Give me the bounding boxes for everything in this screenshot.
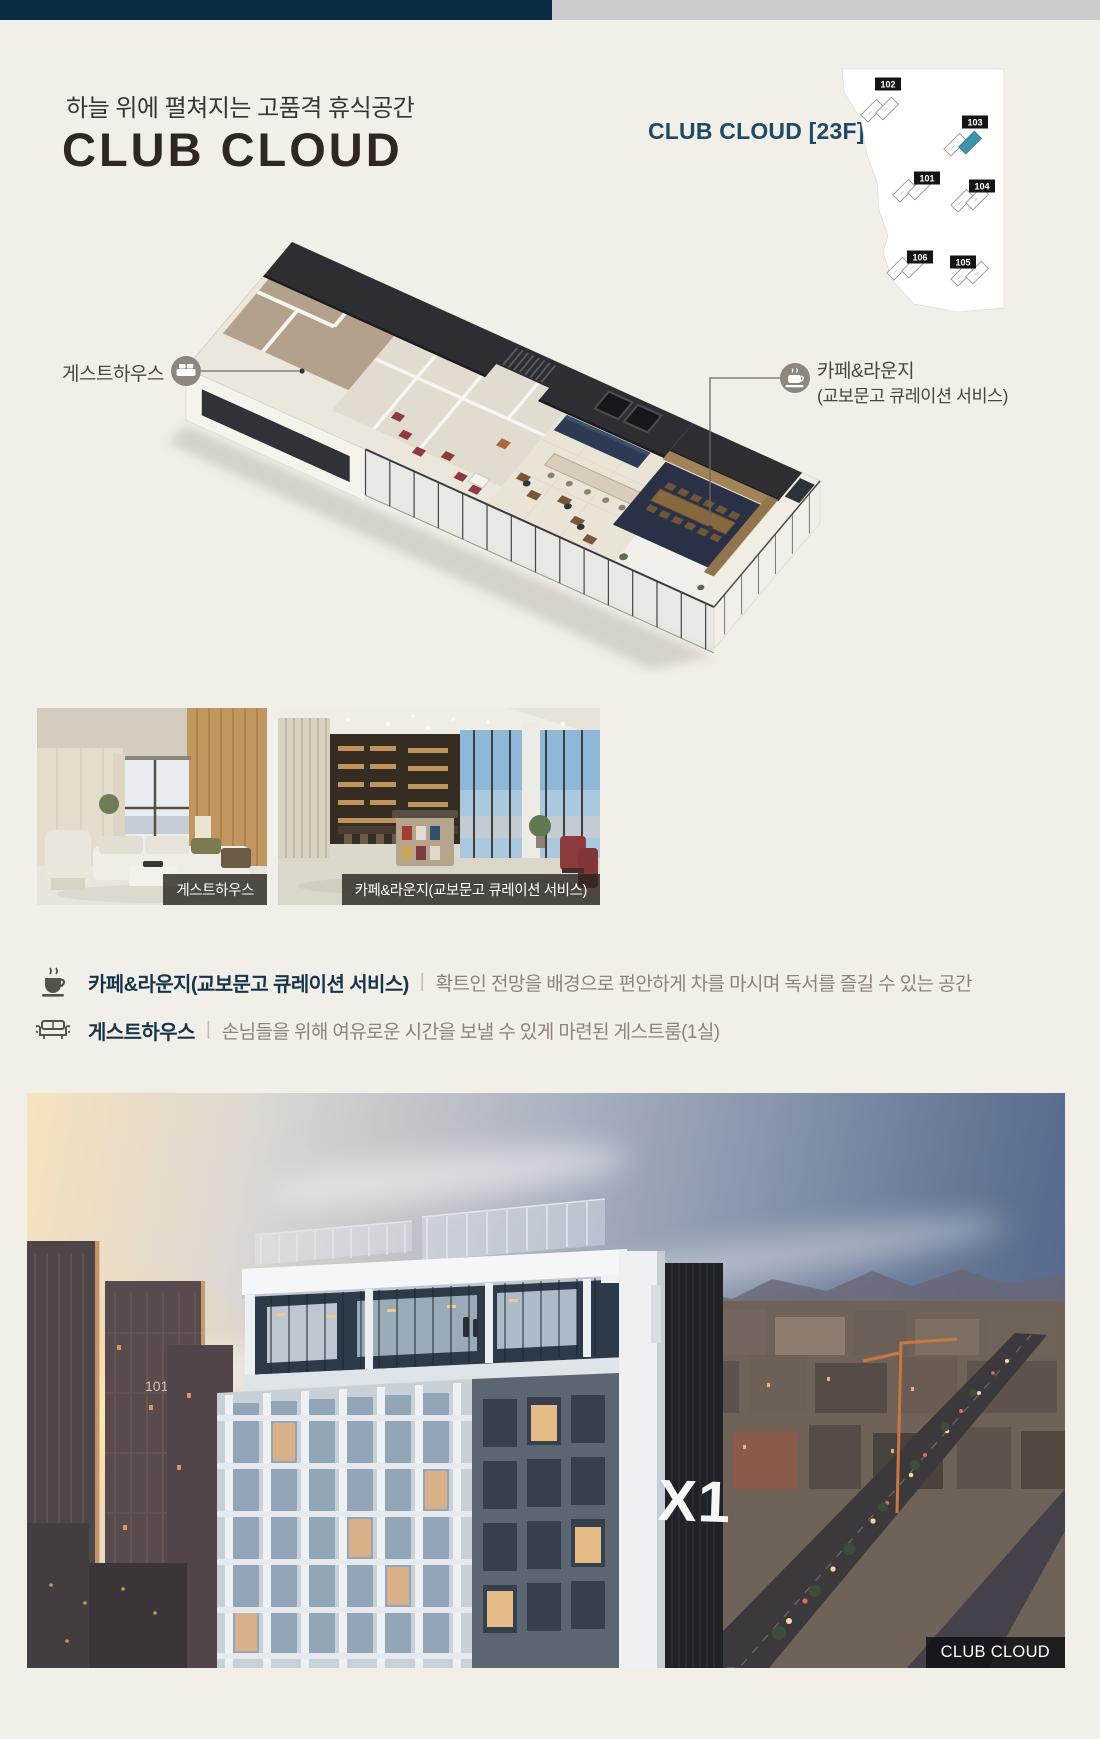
- armchair: [45, 830, 91, 886]
- tower-number-label: 101: [145, 1378, 169, 1394]
- hero-scene: 101: [27, 1093, 1065, 1668]
- building-number-103: 103: [967, 117, 982, 127]
- top-strip-navy: [0, 0, 552, 20]
- coffee-icon: [36, 965, 70, 999]
- brochure-page: 하늘 위에 펼쳐지는 고품격 휴식공간 CLUB CLOUD CLUB CLOU…: [0, 0, 1100, 1739]
- photo-guesthouse: 게스트하우스: [37, 708, 267, 905]
- feature-divider: |: [206, 1019, 211, 1041]
- building-number-101: 101: [919, 173, 934, 183]
- hero-caption: CLUB CLOUD: [926, 1637, 1065, 1668]
- label-cafe-line1: 카페&라운지: [817, 360, 1008, 384]
- photo-cafe-lounge: 카페&라운지(교보문고 큐레이션 서비스): [278, 708, 600, 905]
- x1-logo: X1: [657, 1468, 732, 1536]
- feature-guesthouse: 게스트하우스 | 손님들을 위해 여유로운 시간을 보낼 수 있게 마련된 게스…: [36, 1013, 1086, 1047]
- building-number-104: 104: [974, 181, 989, 191]
- feature-divider: |: [420, 971, 425, 993]
- page-title: CLUB CLOUD: [62, 122, 403, 177]
- feature-cafe-lounge: 카페&라운지(교보문고 큐레이션 서비스) | 확트인 전망을 배경으로 편안하…: [36, 965, 1086, 999]
- feature-name: 카페&라운지(교보문고 큐레이션 서비스): [88, 968, 409, 997]
- top-strip: [0, 0, 1100, 20]
- plant: [529, 815, 551, 837]
- feature-name: 게스트하우스: [88, 1016, 195, 1045]
- top-strip-gray: [552, 0, 1100, 20]
- hero-exterior-photo: 101: [27, 1093, 1065, 1668]
- main-building: X1: [217, 1199, 732, 1668]
- label-cafe-lounge: 카페&라운지 (교보문고 큐레이션 서비스): [817, 360, 1008, 408]
- building-number-102: 102: [880, 79, 895, 89]
- photo-caption-cafe: 카페&라운지(교보문고 큐레이션 서비스): [342, 874, 600, 905]
- label-guesthouse: 게스트하우스: [62, 359, 172, 386]
- page-subtitle: 하늘 위에 펼쳐지는 고품격 휴식공간: [66, 88, 414, 123]
- label-cafe-line2: (교보문고 큐레이션 서비스): [817, 384, 1008, 408]
- sofa-icon: [36, 1013, 70, 1047]
- feature-desc: 확트인 전망을 배경으로 편안하게 차를 마시며 독서를 즐길 수 있는 공간: [436, 969, 972, 996]
- feature-desc: 손님들을 위해 여유로운 시간을 보낼 수 있게 마련된 게스트룸(1실): [222, 1017, 720, 1044]
- isometric-floorplan: [0, 225, 1100, 675]
- display-kiosk: [392, 810, 458, 866]
- photo-caption-guesthouse: 게스트하우스: [163, 874, 267, 905]
